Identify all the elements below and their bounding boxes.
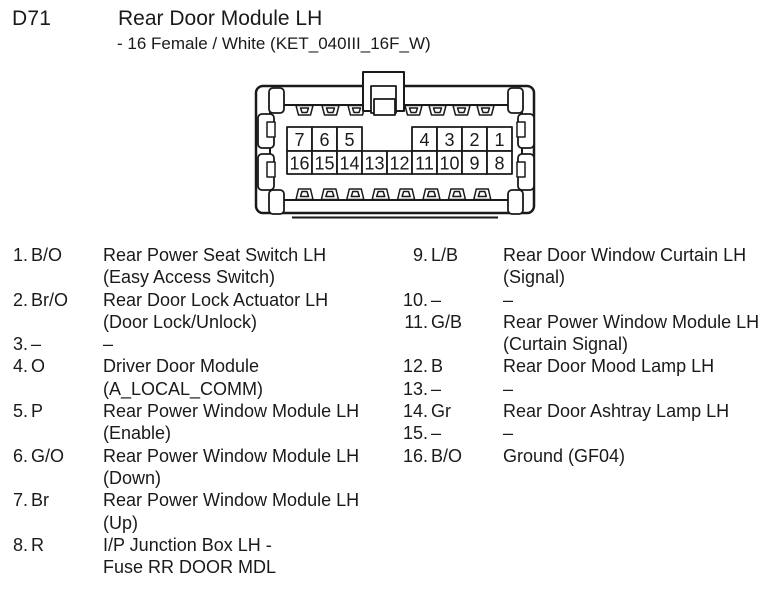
pin-row: 16.B/OGround (GF04): [400, 445, 766, 467]
clip-shape: [353, 108, 361, 113]
pin-cell-number: 11: [415, 154, 434, 174]
description-line: Rear Power Window Module LH: [103, 445, 392, 467]
pin-number: 11.: [400, 311, 428, 333]
pin-list-left: 1.B/ORear Power Seat Switch LH(Easy Acce…: [12, 244, 392, 578]
pinout-page: D71 Rear Door Module LH - 16 Female / Wh…: [0, 0, 770, 589]
clip-shape: [428, 192, 436, 197]
pin-description: –: [103, 333, 392, 355]
pin-row: 11.G/BRear Power Window Module LH(Curtai…: [400, 311, 766, 356]
clip-shape: [377, 192, 385, 197]
pin-description: Ground (GF04): [503, 445, 766, 467]
description-line: Rear Power Window Module LH: [103, 489, 392, 511]
pin-list-right: 9.L/BRear Door Window Curtain LH(Signal)…: [400, 244, 766, 467]
description-line: –: [503, 422, 766, 444]
pin-row: 13.––: [400, 378, 766, 400]
pin-wire-color: B: [431, 355, 503, 377]
pin-description: Rear Power Window Module LH(Down): [103, 445, 392, 490]
pin-number: 3.: [12, 333, 28, 355]
description-line: I/P Junction Box LH -: [103, 534, 392, 556]
clip-shape: [301, 192, 309, 197]
description-line: –: [503, 289, 766, 311]
description-line: Rear Power Window Module LH: [103, 400, 392, 422]
pin-cell-number: 6: [319, 130, 329, 150]
description-line: (Up): [103, 512, 392, 534]
page-title: Rear Door Module LH: [118, 7, 322, 31]
pin-wire-color: Br/O: [31, 289, 103, 311]
clip-shape: [402, 192, 410, 197]
pin-description: I/P Junction Box LH -Fuse RR DOOR MDL: [103, 534, 392, 579]
description-line: Rear Door Ashtray Lamp LH: [503, 400, 766, 422]
pin-row: 1.B/ORear Power Seat Switch LH(Easy Acce…: [12, 244, 392, 289]
clip-shape: [453, 192, 461, 197]
pin-number: 5.: [12, 400, 28, 422]
clip-shape: [326, 192, 334, 197]
pin-row: 7.BrRear Power Window Module LH(Up): [12, 489, 392, 534]
pin-cell-number: 12: [389, 154, 409, 174]
description-line: (Signal): [503, 266, 766, 288]
description-line: (Curtain Signal): [503, 333, 766, 355]
description-line: (A_LOCAL_COMM): [103, 378, 392, 400]
pin-wire-color: Br: [31, 489, 103, 511]
pin-wire-color: –: [431, 289, 503, 311]
clip-shape: [482, 108, 490, 113]
clip-shape: [351, 192, 359, 197]
pin-row: 4.ODriver Door Module(A_LOCAL_COMM): [12, 355, 392, 400]
clip-shape: [478, 192, 486, 197]
pin-description: –: [503, 422, 766, 444]
pin-row: 6.G/ORear Power Window Module LH(Down): [12, 445, 392, 490]
pin-cell-number: 5: [344, 130, 354, 150]
pin-row: 9.L/BRear Door Window Curtain LH(Signal): [400, 244, 766, 289]
pin-wire-color: G/B: [431, 311, 503, 333]
description-line: Rear Door Window Curtain LH: [503, 244, 766, 266]
pin-row: 12.BRear Door Mood Lamp LH: [400, 355, 766, 377]
pin-number: 1.: [12, 244, 28, 266]
pin-row: 2.Br/ORear Door Lock Actuator LH(Door Lo…: [12, 289, 392, 334]
pin-cell-number: 1: [494, 130, 504, 150]
pin-row: 14.GrRear Door Ashtray Lamp LH: [400, 400, 766, 422]
pin-cell-number: 15: [314, 154, 334, 174]
clip-shape: [410, 108, 418, 113]
pin-description: Rear Power Window Module LH(Enable): [103, 400, 392, 445]
pin-description: Driver Door Module(A_LOCAL_COMM): [103, 355, 392, 400]
pin-number: 13.: [400, 378, 428, 400]
description-line: Rear Door Mood Lamp LH: [503, 355, 766, 377]
pin-row: 3.––: [12, 333, 392, 355]
pin-description: –: [503, 378, 766, 400]
pin-number: 7.: [12, 489, 28, 511]
description-line: (Down): [103, 467, 392, 489]
pin-number: 2.: [12, 289, 28, 311]
pin-wire-color: Gr: [431, 400, 503, 422]
connector-id: D71: [12, 7, 51, 31]
pin-cell-number: 3: [444, 130, 454, 150]
pin-wire-color: P: [31, 400, 103, 422]
connector-diagram: 76543211615141312111098: [238, 64, 554, 232]
clip-shape: [434, 108, 442, 113]
description-line: (Easy Access Switch): [103, 266, 392, 288]
pin-description: Rear Door Lock Actuator LH(Door Lock/Unl…: [103, 289, 392, 334]
pin-cell-number: 4: [419, 130, 429, 150]
description-line: (Enable): [103, 422, 392, 444]
pin-row: 15.––: [400, 422, 766, 444]
pin-number: 8.: [12, 534, 28, 556]
pin-cell-number: 7: [294, 130, 304, 150]
pin-wire-color: L/B: [431, 244, 503, 266]
description-line: Rear Power Window Module LH: [503, 311, 766, 333]
description-line: Rear Power Seat Switch LH: [103, 244, 392, 266]
pin-number: 4.: [12, 355, 28, 377]
pin-description: Rear Door Window Curtain LH(Signal): [503, 244, 766, 289]
pin-number: 14.: [400, 400, 428, 422]
pin-description: Rear Door Mood Lamp LH: [503, 355, 766, 377]
pin-wire-color: R: [31, 534, 103, 556]
pin-cell-number: 14: [339, 154, 359, 174]
description-line: Ground (GF04): [503, 445, 766, 467]
pin-wire-color: –: [31, 333, 103, 355]
description-line: –: [103, 333, 392, 355]
description-line: Rear Door Lock Actuator LH: [103, 289, 392, 311]
clip-shape: [327, 108, 335, 113]
pin-number: 15.: [400, 422, 428, 444]
pin-description: Rear Power Seat Switch LH(Easy Access Sw…: [103, 244, 392, 289]
pin-row: 10.––: [400, 289, 766, 311]
pin-cell-number: 16: [289, 154, 309, 174]
pin-row: 8.RI/P Junction Box LH -Fuse RR DOOR MDL: [12, 534, 392, 579]
pin-number: 16.: [400, 445, 428, 467]
pin-number: 12.: [400, 355, 428, 377]
pin-description: Rear Power Window Module LH(Up): [103, 489, 392, 534]
connector-latch: [363, 72, 404, 115]
pin-cell-number: 13: [364, 154, 384, 174]
clip-shape: [301, 108, 309, 113]
pin-cell-number: 10: [439, 154, 459, 174]
description-line: Fuse RR DOOR MDL: [103, 556, 392, 578]
pin-wire-color: –: [431, 378, 503, 400]
pin-description: Rear Door Ashtray Lamp LH: [503, 400, 766, 422]
pin-wire-color: –: [431, 422, 503, 444]
description-line: –: [503, 378, 766, 400]
pin-row: 5.PRear Power Window Module LH(Enable): [12, 400, 392, 445]
pin-wire-color: B/O: [431, 445, 503, 467]
description-line: (Door Lock/Unlock): [103, 311, 392, 333]
pin-description: –: [503, 289, 766, 311]
connector-subtitle: - 16 Female / White (KET_040III_16F_W): [117, 34, 431, 54]
pin-wire-color: G/O: [31, 445, 103, 467]
pin-wire-color: B/O: [31, 244, 103, 266]
pin-description: Rear Power Window Module LH(Curtain Sign…: [503, 311, 766, 356]
pin-number: 6.: [12, 445, 28, 467]
clip-shape: [458, 108, 466, 113]
pin-number: 9.: [400, 244, 428, 266]
description-line: Driver Door Module: [103, 355, 392, 377]
pin-cell-number: 8: [494, 154, 504, 174]
pin-wire-color: O: [31, 355, 103, 377]
pin-cell-number: 9: [469, 154, 479, 174]
pin-cell-number: 2: [469, 130, 479, 150]
pin-number: 10.: [400, 289, 428, 311]
